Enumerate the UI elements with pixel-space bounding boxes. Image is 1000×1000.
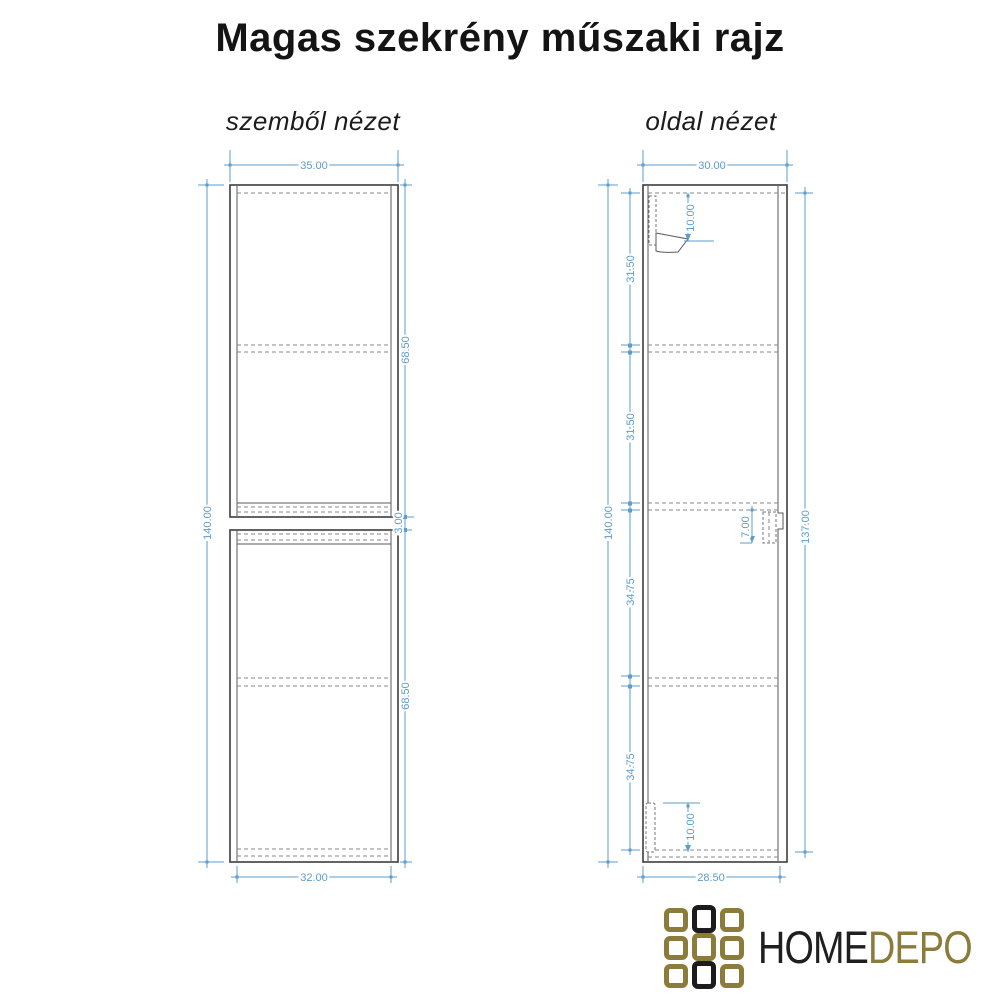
mid-bracket-detail: [763, 512, 776, 543]
dim-side-seg3: 34.75: [625, 578, 637, 606]
logo-square-black: [692, 961, 716, 989]
logo-square-gold: [692, 933, 716, 961]
dim-side-depth-top: 30.00: [698, 160, 726, 172]
logo-text-home: HOME: [758, 922, 868, 973]
top-bracket-detail: [649, 196, 688, 252]
logo-grid-icon: [664, 908, 744, 988]
dim-side-height-left: 140.00: [603, 506, 615, 540]
logo-text-depo: DEPO: [868, 922, 972, 973]
side-view-dimensions: 30.00 140.00 31.50 31.50 34.75 34.75: [598, 150, 813, 884]
logo-square-gold: [664, 908, 688, 932]
dim-side-depth-bottom: 28.50: [697, 872, 725, 884]
logo-square-gold: [720, 936, 744, 960]
technical-drawing: 35.00 140.00 68.50 3.00 68.50 32.00: [0, 0, 1000, 1000]
dim-front-upper-right: 68.50: [400, 336, 412, 364]
bottom-bracket-detail: [646, 803, 655, 852]
logo-square-gold: [720, 908, 744, 932]
dim-side-mid-bracket: 7.00: [740, 516, 752, 537]
side-view-drawing: [643, 185, 787, 862]
dim-side-seg2: 31.50: [625, 413, 637, 441]
dim-side-height-right: 137.00: [800, 510, 812, 544]
dim-front-height-left: 140.00: [202, 506, 214, 540]
logo-square-gold: [720, 964, 744, 988]
dim-side-bottom-bracket: 10.00: [685, 813, 697, 841]
dim-front-width-bottom: 32.00: [300, 872, 328, 884]
dim-front-width-top: 35.00: [300, 160, 328, 172]
logo-square-gold: [664, 964, 688, 988]
front-view-drawing: [230, 185, 398, 862]
dim-side-top-bracket: 10.00: [685, 204, 697, 232]
logo-wordmark: HOMEDEPO: [758, 922, 972, 974]
logo: HOMEDEPO: [664, 908, 1000, 988]
dim-side-seg4: 34.75: [625, 753, 637, 781]
logo-square-gold: [664, 936, 688, 960]
dim-front-lower-right: 68.50: [400, 682, 412, 710]
dim-front-gap-right: 3.00: [393, 512, 405, 533]
dim-side-seg1: 31.50: [625, 255, 637, 283]
logo-square-black: [692, 905, 716, 933]
